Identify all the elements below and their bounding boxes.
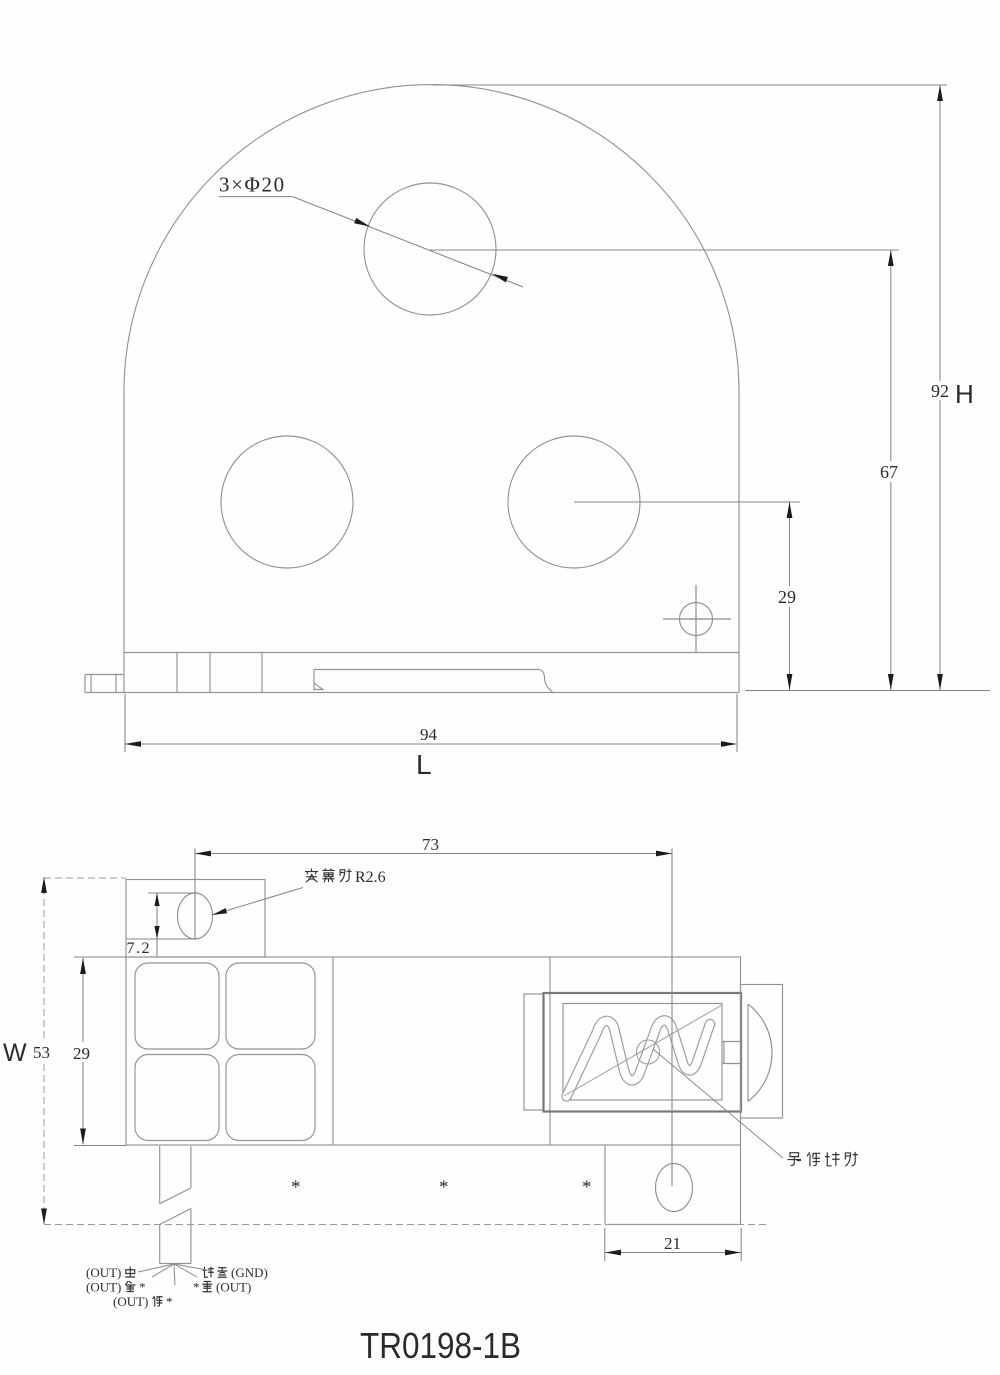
svg-text:(OUT): (OUT) <box>86 1280 121 1295</box>
svg-text:*: * <box>166 1294 173 1309</box>
svg-text:92: 92 <box>931 381 949 401</box>
svg-text:(OUT): (OUT) <box>113 1294 148 1309</box>
svg-text:*: * <box>439 1177 449 1198</box>
svg-text:21: 21 <box>664 1234 681 1253</box>
svg-text:(OUT): (OUT) <box>86 1265 121 1280</box>
svg-text:94: 94 <box>420 725 438 744</box>
svg-text:73: 73 <box>422 835 439 854</box>
svg-text:29: 29 <box>73 1044 90 1063</box>
svg-text:53: 53 <box>33 1043 50 1062</box>
svg-text:(GND): (GND) <box>231 1265 268 1280</box>
svg-text:29: 29 <box>778 587 796 607</box>
svg-text:H: H <box>955 379 974 409</box>
svg-text:TR0198-1B: TR0198-1B <box>360 1325 521 1366</box>
svg-text:*: * <box>291 1177 301 1198</box>
svg-text:W: W <box>3 1039 27 1067</box>
svg-text:7.2: 7.2 <box>127 940 152 957</box>
svg-text:3×Φ20: 3×Φ20 <box>219 173 286 197</box>
svg-text:67: 67 <box>880 462 898 482</box>
svg-text:*: * <box>193 1280 200 1295</box>
svg-text:R2.6: R2.6 <box>355 869 386 886</box>
svg-text:(OUT): (OUT) <box>216 1280 251 1295</box>
svg-text:*: * <box>139 1280 146 1295</box>
svg-text:L: L <box>416 749 432 780</box>
svg-text:*: * <box>582 1177 592 1198</box>
